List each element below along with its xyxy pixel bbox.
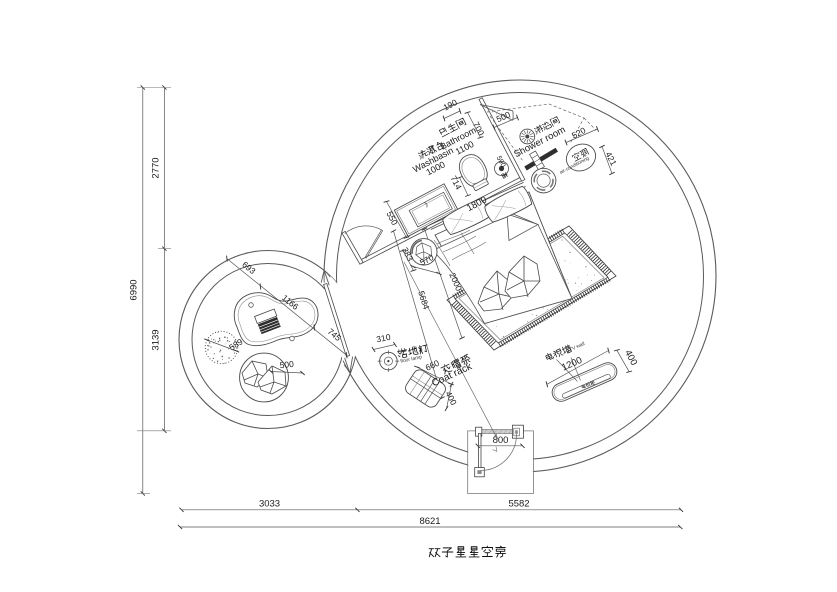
svg-text:8621: 8621 (419, 516, 440, 527)
svg-text:6990: 6990 (129, 279, 140, 300)
svg-text:3033: 3033 (259, 499, 280, 510)
svg-text:500: 500 (279, 359, 294, 370)
svg-text:3139: 3139 (151, 329, 162, 350)
svg-text:2770: 2770 (151, 157, 162, 178)
svg-text:5582: 5582 (508, 499, 529, 510)
